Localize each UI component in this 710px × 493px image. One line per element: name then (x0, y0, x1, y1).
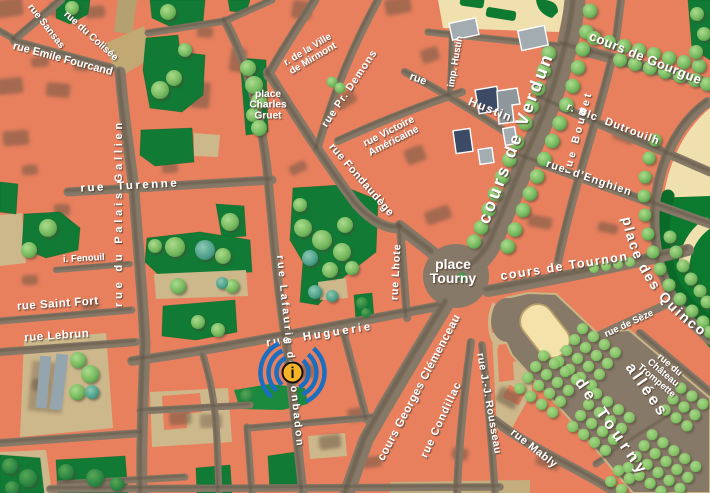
svg-text:i. Fenouil: i. Fenouil (63, 252, 105, 265)
svg-text:placeTourny: placeTourny (430, 256, 477, 286)
svg-text:rue du Palais Gallien: rue du Palais Gallien (113, 119, 125, 307)
svg-text:i: i (290, 365, 294, 382)
